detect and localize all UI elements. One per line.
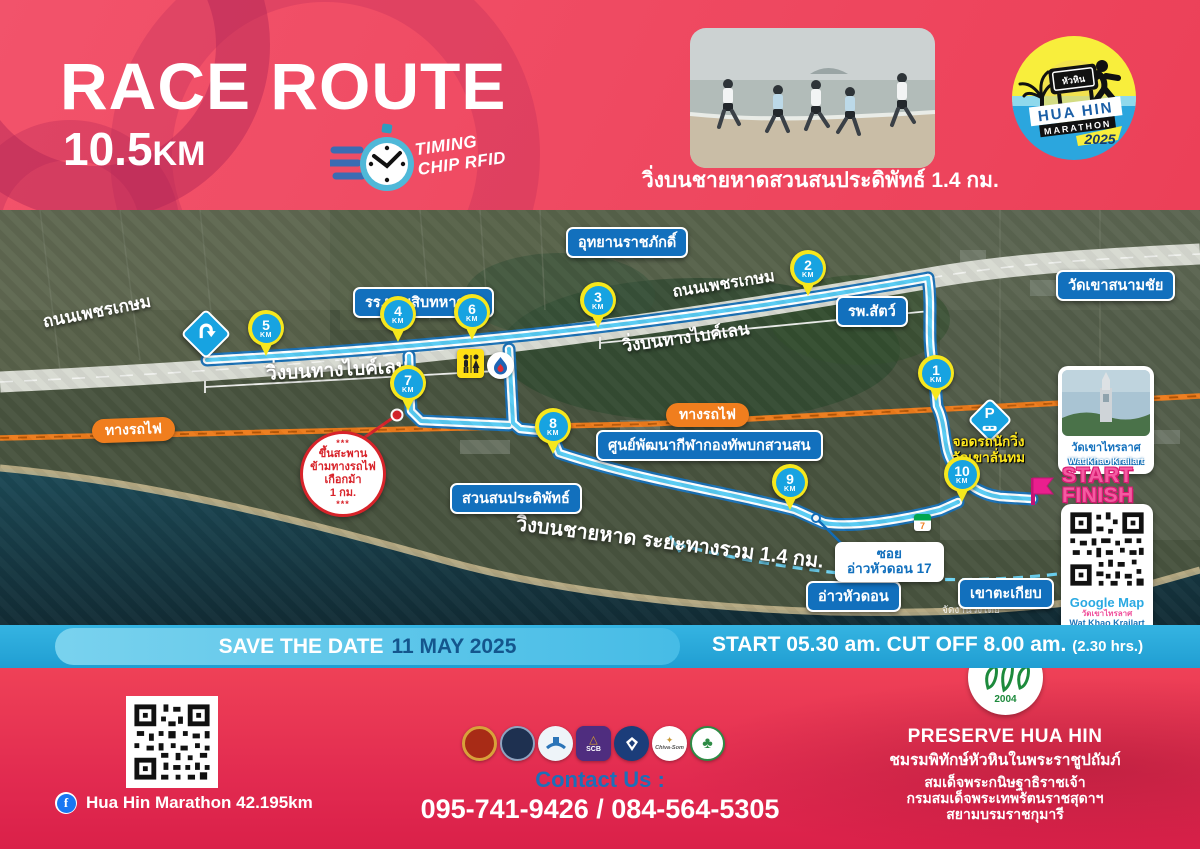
contact-us-label: Contact Us : bbox=[380, 767, 820, 793]
google-map-qr-card: Google Map วัดเขาไทรลาศ Wat Khao Krailar… bbox=[1061, 504, 1153, 625]
km-number: 6 bbox=[468, 302, 476, 316]
event-date: 11 MAY 2025 bbox=[391, 635, 516, 659]
km-number: 5 bbox=[262, 318, 270, 332]
distance-value: 10.5 bbox=[63, 123, 153, 175]
soi-line1: ซอย bbox=[847, 547, 932, 562]
sponsor-emblem-blue-logo bbox=[538, 726, 573, 761]
stopwatch-icon bbox=[330, 120, 420, 205]
facebook-icon: f bbox=[55, 792, 77, 814]
label-suan-son: สวนสนประดิพัทธ์ bbox=[450, 483, 582, 514]
label-ao-hua-don: อ่าวหัวดอน bbox=[806, 581, 901, 612]
timing-chip-label: TIMING CHIP RFID bbox=[414, 128, 507, 179]
km-number: 3 bbox=[594, 290, 602, 304]
marathon-logo-graphic: หัวหิน HUA HIN MARATHON 2025 bbox=[1012, 36, 1136, 160]
parking-note-line1: จอดรถนักวิ่ง bbox=[952, 434, 1025, 450]
seven-eleven-digit: 7 bbox=[920, 522, 925, 531]
runners-beach-photo bbox=[690, 28, 935, 168]
km-marker-5: 5KM bbox=[248, 310, 284, 358]
hua-hin-marathon-logo: หัวหิน HUA HIN MARATHON 2025 bbox=[1012, 36, 1136, 160]
sponsor-bangkok-bank-logo bbox=[614, 726, 649, 761]
km-marker-8: 8KM bbox=[535, 408, 571, 456]
label-wat-khao-sanamchai: วัดเขาสนามชัย bbox=[1056, 270, 1175, 301]
start-finish-flag-icon bbox=[1028, 474, 1056, 506]
wat-khao-krailart-card: วัดเขาไทรลาศ Wat Khao Krailart bbox=[1058, 366, 1154, 474]
bridge-note-line3: เกือกม้า bbox=[324, 474, 361, 487]
registration-qr-code bbox=[126, 696, 218, 788]
label-khao-takiab: เขาตะเกียบ bbox=[958, 578, 1054, 609]
km-number: 4 bbox=[394, 304, 402, 318]
map-base-graphic bbox=[0, 210, 1200, 625]
sponsor-logos: △SCB ✦Chiva-Som ♣ bbox=[462, 726, 725, 761]
temple-photo bbox=[1062, 370, 1150, 436]
svg-text:2025: 2025 bbox=[1083, 131, 1115, 147]
google-map-label: Google Map bbox=[1066, 595, 1148, 610]
km-unit: KM bbox=[547, 430, 559, 437]
km-marker-7: 7KM bbox=[390, 365, 426, 413]
finish-text: FINISH bbox=[1062, 486, 1172, 506]
label-soi-ao-hua-don-17: ซอย อ่าวหัวดอน 17 bbox=[835, 542, 944, 582]
preserve-year: 2004 bbox=[994, 694, 1016, 705]
chiva-som-text: Chiva-Som bbox=[655, 745, 684, 751]
km-unit: KM bbox=[402, 387, 414, 394]
km-unit: KM bbox=[956, 478, 968, 485]
preserve-title: PRESERVE HUA HIN bbox=[872, 726, 1138, 748]
temple-name-thai: วัดเขาไทรลาศ bbox=[1062, 438, 1150, 456]
label-rajabhakti-park: อุทยานราชภักดิ์ bbox=[566, 227, 688, 258]
railway-label-right: ทางรถไฟ bbox=[666, 403, 749, 427]
preserve-line1: ชมรมพิทักษ์หัวหินในพระราชูปถัมภ์ bbox=[872, 747, 1138, 772]
km-number: 8 bbox=[549, 416, 557, 430]
bridge-note-line2: ข้ามทางรถไฟ bbox=[310, 461, 376, 474]
bridge-note-line4: 1 กม. bbox=[330, 487, 356, 500]
toilet-icon bbox=[457, 349, 484, 378]
contact-block: Contact Us : 095-741-9426 / 084-564-5305 bbox=[380, 767, 820, 825]
parking-icon: P bbox=[974, 404, 1006, 436]
facebook-page-name: Hua Hin Marathon 42.195km bbox=[86, 793, 313, 813]
beach-photo-graphic bbox=[690, 28, 935, 168]
distance-unit: KM bbox=[153, 135, 206, 173]
sponsor-green-palm-logo: ♣ bbox=[690, 726, 725, 761]
u-turn-icon bbox=[188, 316, 224, 352]
km-unit: KM bbox=[392, 318, 404, 325]
km-unit: KM bbox=[592, 304, 604, 311]
km-marker-4: 4KM bbox=[380, 296, 416, 344]
parking-letter: P bbox=[982, 407, 998, 421]
km-number: 9 bbox=[786, 472, 794, 486]
seven-eleven-icon: 7 bbox=[914, 514, 931, 531]
race-distance: 10.5KM bbox=[63, 122, 205, 176]
start-text: START bbox=[1062, 466, 1172, 486]
railway-label-left: ทางรถไฟ bbox=[92, 417, 176, 444]
preserve-line4: สยามบรมราชกุมารี bbox=[872, 804, 1138, 826]
km-number: 10 bbox=[954, 464, 970, 478]
footer: f Hua Hin Marathon 42.195km △SCB ✦Chiva-… bbox=[0, 668, 1200, 849]
km-marker-10: 10KM bbox=[944, 456, 980, 504]
stars: *** bbox=[336, 500, 350, 509]
km-number: 7 bbox=[404, 373, 412, 387]
km-number: 2 bbox=[804, 258, 812, 272]
km-marker-2: 2KM bbox=[790, 250, 826, 298]
facebook-row: f Hua Hin Marathon 42.195km bbox=[55, 792, 313, 814]
contact-phones: 095-741-9426 / 084-564-5305 bbox=[380, 794, 820, 825]
start-cutoff-info: START 05.30 am. CUT OFF 8.00 am. (2.30 h… bbox=[712, 633, 1143, 657]
bridge-note-callout: *** ขึ้นสะพาน ข้ามทางรถไฟ เกือกม้า 1 กม.… bbox=[300, 431, 386, 517]
date-banner: SAVE THE DATE 11 MAY 2025 START 05.30 am… bbox=[0, 625, 1200, 668]
km-number: 1 bbox=[932, 363, 940, 377]
km-unit: KM bbox=[784, 486, 796, 493]
km-unit: KM bbox=[802, 272, 814, 279]
sponsor-scb-logo: △SCB bbox=[576, 726, 611, 761]
start-cutoff-text: START 05.30 am. CUT OFF 8.00 am. bbox=[712, 633, 1066, 656]
timing-chip-badge: TIMING CHIP RFID bbox=[330, 120, 560, 205]
duration-text: (2.30 hrs.) bbox=[1072, 638, 1143, 655]
km-unit: KM bbox=[260, 332, 272, 339]
scb-text: SCB bbox=[586, 746, 601, 753]
page-title: RACE ROUTE bbox=[60, 48, 506, 124]
km-unit: KM bbox=[930, 377, 942, 384]
km-unit: KM bbox=[466, 316, 478, 323]
stars: *** bbox=[336, 439, 350, 448]
sponsor-emblem-navy-logo bbox=[500, 726, 535, 761]
start-finish-label: START FINISH bbox=[1062, 466, 1172, 506]
km-marker-9: 9KM bbox=[772, 464, 808, 512]
soi-line2: อ่าวหัวดอน 17 bbox=[847, 562, 932, 577]
save-the-date-pill: SAVE THE DATE 11 MAY 2025 bbox=[55, 628, 680, 665]
save-the-date-text: SAVE THE DATE bbox=[219, 635, 384, 659]
km-marker-6: 6KM bbox=[454, 294, 490, 342]
ptt-gas-station-icon bbox=[487, 352, 514, 379]
km-marker-3: 3KM bbox=[580, 282, 616, 330]
label-army-sports-center: ศูนย์พัฒนากีฬากองทัพบกสวนสน bbox=[596, 430, 823, 461]
route-map: ถนนเพชรเกษม ถนนเพชรเกษม ทางรถไฟ ทางรถไฟ … bbox=[0, 210, 1200, 625]
label-vet-hospital: รพ.สัตว์ bbox=[836, 296, 908, 327]
bridge-note-line1: ขึ้นสะพาน bbox=[319, 448, 368, 461]
sponsor-chiva-som-logo: ✦Chiva-Som bbox=[652, 726, 687, 761]
photo-caption: วิ่งบนชายหาดสวนสนประดิพัทธ์ 1.4 กม. bbox=[642, 164, 1042, 197]
km-marker-1: 1KM bbox=[918, 355, 954, 403]
race-route-poster: RACE ROUTE 10.5KM TIMING bbox=[0, 0, 1200, 849]
header: RACE ROUTE 10.5KM TIMING bbox=[0, 0, 1200, 210]
qr-code-map bbox=[1068, 510, 1146, 588]
sponsor-emblem-red-logo bbox=[462, 726, 497, 761]
